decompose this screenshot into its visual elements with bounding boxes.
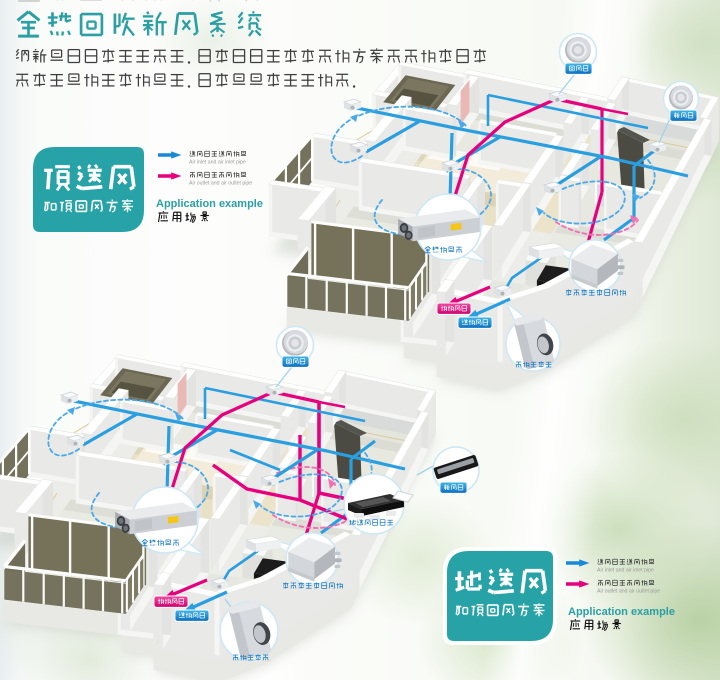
svg-text:Air inlet and air inlet pipe: Air inlet and air inlet pipe [189,160,246,166]
svg-text:Air inlet and air inlet pipe: Air inlet and air inlet pipe [597,568,654,574]
svg-text:Air outlet and air outlet pipe: Air outlet and air outlet pipe [597,589,660,595]
svg-text:Application example: Application example [568,606,675,618]
svg-text:Air outlet and air outlet pipe: Air outlet and air outlet pipe [189,181,252,187]
svg-text:Application example: Application example [156,198,263,210]
